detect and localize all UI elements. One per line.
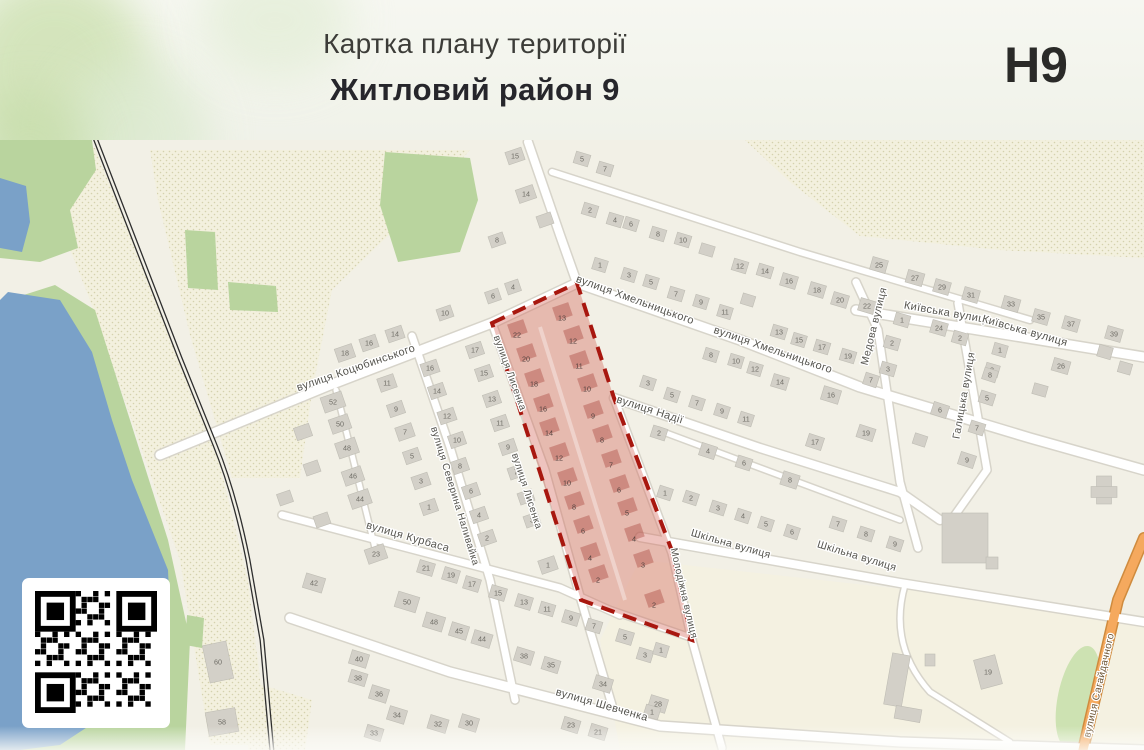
house-number: 9 [893,540,897,549]
red-zone-lot-number: 11 [575,362,582,371]
house-number: 7 [836,520,840,529]
house-number: 2 [485,534,489,543]
house-number: 6 [469,487,473,496]
house-number: 34 [599,680,607,689]
house-number: 10 [453,436,461,445]
house-number: 11 [496,419,503,428]
red-zone-lot-number: 7 [609,461,613,470]
house-number: 18 [341,349,349,358]
building-footprint [925,654,935,666]
house-number: 4 [477,511,481,520]
house-number: 12 [443,412,451,421]
house-number: 37 [1067,320,1075,329]
house-number: 15 [494,589,502,598]
red-zone-lot-number: 8 [600,436,604,445]
house-number: 6 [790,528,794,537]
house-number: 15 [511,152,519,161]
house-number: 44 [478,635,486,644]
building-footprint [942,513,988,563]
house-number: 9 [965,456,969,465]
house-number: 3 [419,477,423,486]
house-number: 14 [522,190,530,199]
house-number: 5 [985,394,989,403]
house-number: 19 [984,668,992,677]
red-zone-lot-number: 6 [617,486,621,495]
house-number: 7 [592,622,596,631]
house-number: 7 [695,399,699,408]
house-number: 8 [988,371,992,380]
house-number: 16 [827,391,835,400]
house-number: 1 [900,316,904,325]
card-header: Картка плану території Житловий район 9 … [0,0,1144,140]
house-number: 2 [657,429,661,438]
house-number: 11 [742,415,749,424]
red-zone-lot-number: 2 [596,576,600,585]
house-number: 13 [775,328,783,337]
red-zone-lot-number: 6 [581,527,585,536]
house-number: 1 [650,708,654,717]
house-number: 11 [383,379,390,388]
house-number: 34 [393,711,401,720]
house-number: 40 [355,655,363,664]
house-number: 6 [742,459,746,468]
house-number: 19 [862,429,870,438]
house-number: 9 [569,614,573,623]
bottom-fade [0,726,1144,750]
house-number: 23 [372,550,380,559]
card-subtitle: Картка плану території [250,28,700,60]
house-number: 2 [588,206,592,215]
page-title: Житловий район 9 [250,72,700,108]
house-number: 48 [430,618,438,627]
house-number: 33 [1007,300,1015,309]
red-zone-lot-number: 5 [625,509,629,518]
house-number: 3 [646,379,650,388]
house-number: 13 [488,395,496,404]
house-number: 7 [975,424,979,433]
house-number: 20 [836,296,844,305]
house-number: 8 [495,236,499,245]
red-zone-lot-number: 13 [558,314,566,323]
house-number: 1 [659,646,663,655]
house-number: 7 [674,290,678,299]
house-number: 13 [520,598,528,607]
house-number: 39 [1110,330,1118,339]
district-code: Н9 [1004,36,1068,94]
red-zone-lot-number: 9 [591,412,595,421]
house-number: 3 [643,651,647,660]
house-number: 16 [785,277,793,286]
qr-code [22,578,170,728]
house-number: 17 [811,438,819,447]
house-number: 8 [788,476,792,485]
building-footprint [1091,487,1117,498]
house-number: 58 [218,718,226,727]
red-zone-lot-number: 12 [555,454,563,463]
house-number: 3 [627,271,631,280]
house-number: 35 [547,661,555,670]
house-number: 14 [776,378,784,387]
house-number: 21 [422,564,430,573]
house-number: 3 [886,365,890,374]
house-number: 10 [732,357,740,366]
house-number: 11 [543,605,550,614]
house-number: 17 [468,580,476,589]
house-number: 4 [706,447,710,456]
red-zone-lot-number: 18 [530,380,538,389]
house-number: 22 [863,302,871,311]
house-number: 10 [441,309,449,318]
house-number: 15 [480,369,488,378]
house-number: 3 [716,504,720,513]
house-number: 16 [426,364,434,373]
red-zone-lot-number: 4 [588,554,592,563]
house-number: 6 [629,220,633,229]
house-number: 5 [623,633,627,642]
house-number: 25 [875,261,883,270]
house-number: 38 [520,652,528,661]
house-number: 7 [869,376,873,385]
house-number: 45 [455,627,463,636]
house-number: 10 [679,236,687,245]
red-zone-lot-number: 3 [641,561,645,570]
house-number: 2 [890,339,894,348]
building-footprint [986,557,998,569]
house-number: 42 [310,579,318,588]
house-number: 16 [365,339,373,348]
house-number: 26 [1057,362,1065,371]
house-number: 11 [721,308,728,317]
house-number: 6 [938,406,942,415]
house-number: 19 [844,352,852,361]
house-number: 7 [603,165,607,174]
house-number: 12 [736,262,744,271]
red-zone-lot-number: 4 [632,535,636,544]
house-number: 1 [598,261,602,270]
house-number: 12 [751,365,759,374]
red-zone-lot-number: 2 [652,601,656,610]
house-number: 4 [613,216,617,225]
house-number: 31 [967,291,975,300]
house-number: 8 [709,351,713,360]
house-number: 8 [656,230,660,239]
house-number: 5 [410,452,414,461]
plan-card: Картка плану території Житловий район 9 … [0,0,1144,750]
house-number: 8 [864,530,868,539]
house-number: 6 [491,292,495,301]
house-number: 17 [818,343,826,352]
house-number: 44 [356,495,364,504]
house-number: 8 [458,462,462,471]
house-number: 29 [938,283,946,292]
house-number: 9 [394,405,398,414]
red-zone-lot-number: 10 [563,479,571,488]
house-number: 38 [354,674,362,683]
house-number: 18 [813,286,821,295]
house-number: 1 [546,561,550,570]
house-number: 5 [670,391,674,400]
house-number: 2 [689,494,693,503]
house-number: 60 [214,658,222,667]
house-number: 1 [663,489,667,498]
house-number: 4 [511,283,515,292]
house-number: 14 [761,267,769,276]
red-zone-lot-number: 22 [513,331,521,340]
house-number: 15 [795,336,803,345]
house-number: 48 [343,444,351,453]
house-number: 46 [349,472,357,481]
house-number: 19 [447,571,455,580]
red-zone-lot-number: 12 [569,337,577,346]
red-zone-lot-number: 8 [572,503,576,512]
house-number: 1 [998,346,1002,355]
house-number: 17 [471,346,479,355]
house-number: 27 [911,274,919,283]
house-number: 5 [649,278,653,287]
house-number: 35 [1037,313,1045,322]
red-zone-lot-number: 10 [583,385,591,394]
house-number: 9 [720,407,724,416]
house-number: 5 [580,155,584,164]
house-number: 2 [958,334,962,343]
house-number: 1 [427,503,431,512]
house-number: 14 [391,330,399,339]
house-number: 24 [935,324,943,333]
house-number: 7 [403,428,407,437]
red-zone-lot-number: 14 [545,429,553,438]
house-number: 50 [403,598,411,607]
house-number: 52 [329,398,337,407]
house-number: 14 [433,387,441,396]
red-zone-lot-number: 16 [539,405,547,414]
house-number: 9 [506,443,510,452]
red-zone-lot-number: 20 [522,355,530,364]
house-number: 4 [741,512,745,521]
house-number: 50 [336,420,344,429]
house-number: 36 [375,690,383,699]
house-number: 9 [699,298,703,307]
house-number: 5 [764,520,768,529]
